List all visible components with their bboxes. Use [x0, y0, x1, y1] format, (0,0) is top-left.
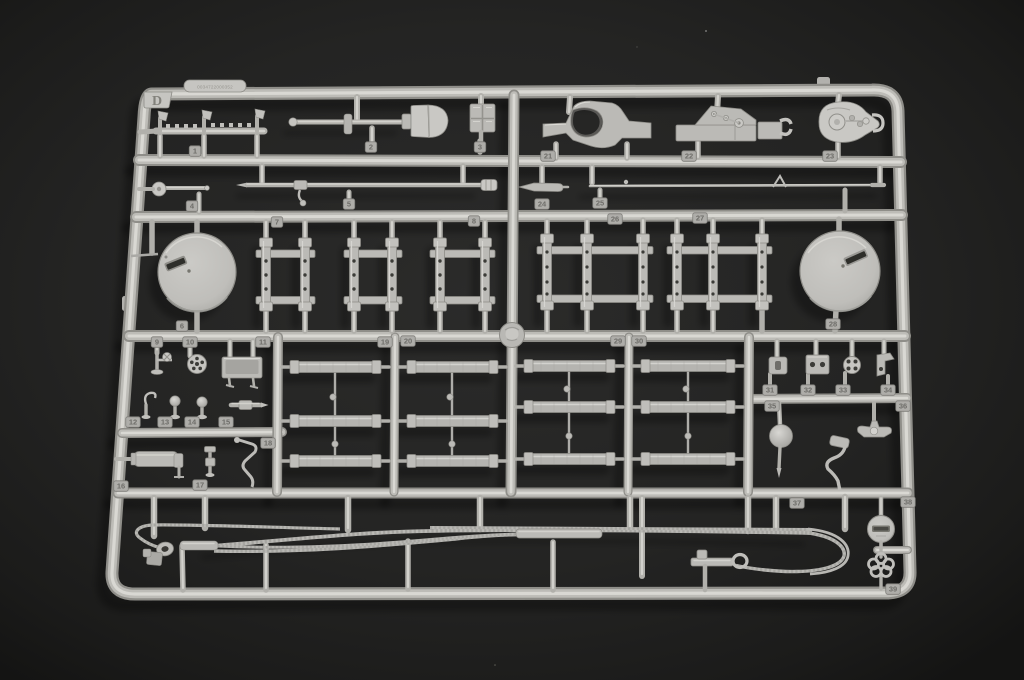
svg-text:1: 1 [193, 147, 197, 156]
svg-text:26: 26 [611, 215, 619, 224]
svg-text:38: 38 [904, 498, 912, 507]
svg-text:37: 37 [793, 499, 801, 508]
svg-text:39: 39 [889, 585, 897, 594]
svg-text:27: 27 [696, 214, 704, 223]
svg-text:18: 18 [264, 439, 272, 448]
svg-text:3: 3 [478, 143, 482, 152]
svg-text:6: 6 [180, 322, 184, 331]
svg-text:D: D [152, 94, 162, 109]
svg-text:25: 25 [596, 199, 604, 208]
svg-text:11: 11 [259, 338, 267, 347]
svg-text:15: 15 [222, 418, 230, 427]
svg-text:12: 12 [129, 418, 137, 427]
svg-text:17: 17 [196, 481, 204, 490]
svg-text:0034722000352: 0034722000352 [197, 85, 233, 90]
svg-text:30: 30 [635, 337, 643, 346]
svg-text:2: 2 [369, 143, 373, 152]
svg-text:5: 5 [347, 200, 351, 209]
svg-text:31: 31 [766, 386, 774, 395]
svg-text:32: 32 [804, 386, 812, 395]
svg-text:36: 36 [899, 402, 907, 411]
svg-text:35: 35 [768, 402, 776, 411]
svg-text:14: 14 [188, 418, 197, 427]
svg-text:7: 7 [275, 218, 279, 227]
svg-text:21: 21 [544, 152, 552, 161]
svg-text:22: 22 [685, 152, 693, 161]
svg-text:29: 29 [614, 337, 622, 346]
svg-text:8: 8 [472, 217, 476, 226]
svg-text:10: 10 [186, 338, 194, 347]
svg-text:23: 23 [826, 152, 834, 161]
svg-text:20: 20 [404, 337, 412, 346]
svg-text:19: 19 [381, 338, 389, 347]
svg-text:13: 13 [161, 418, 169, 427]
svg-text:33: 33 [839, 386, 847, 395]
svg-text:16: 16 [117, 482, 125, 491]
svg-text:28: 28 [829, 320, 837, 329]
svg-text:34: 34 [884, 386, 893, 395]
svg-text:9: 9 [155, 338, 159, 347]
svg-text:24: 24 [538, 200, 547, 209]
